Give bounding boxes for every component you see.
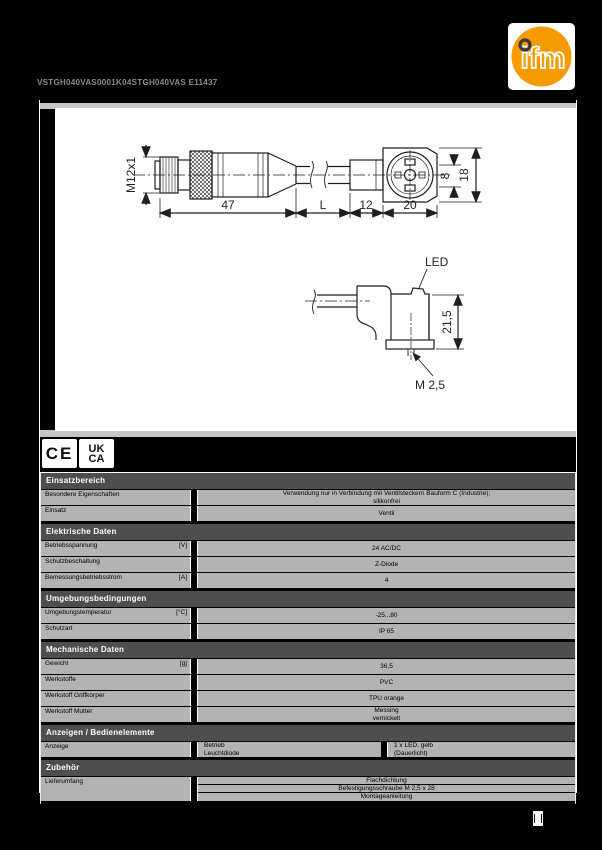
row-value: -25...80 <box>375 612 397 619</box>
table-row: Gewicht [g] 36,5 <box>41 659 575 674</box>
row-value: Verwendung nur in Verbindung mit Ventils… <box>283 490 490 497</box>
svg-text:ifm: ifm <box>521 42 566 75</box>
row-label: Schutzart <box>45 625 72 633</box>
row-label: Besondere Eigenschaften <box>45 491 119 499</box>
table-row: Anzeige Betrieb Leuchtdiode 1 x LED, gel… <box>41 742 575 757</box>
dim-47: 47 <box>221 198 235 212</box>
row-value: PVC <box>380 679 393 686</box>
panel-bottom-strip <box>40 430 576 437</box>
ifm-logo-icon: ifm <box>508 23 575 90</box>
row-unit: [A] <box>179 574 187 582</box>
section-header: Einsatzbereich <box>41 473 575 489</box>
dim-20: 20 <box>403 198 417 212</box>
section-header: Umgebungsbedingungen <box>41 591 575 607</box>
table-row: Werkstoff Mutter Messing vernickelt <box>41 707 575 722</box>
row-value: Ventil <box>379 510 395 517</box>
row-value: Z-Diode <box>375 561 398 568</box>
technical-drawing-panel: M12x1 <box>55 108 576 431</box>
ukca-mark: UK CA <box>79 439 114 468</box>
ce-mark: CE <box>42 439 77 468</box>
row-value: Montageanleitung <box>361 793 413 800</box>
ukca-line1: UK <box>89 444 105 454</box>
page-title: VSTGH040VAS0001K04STGH040VAS E11437 <box>37 78 218 87</box>
row-value: vernickelt <box>373 715 400 722</box>
table-row: Betriebsspannung [V] 24 AC/DC <box>41 541 575 556</box>
table-row: Schutzart IP 65 <box>41 624 575 639</box>
row-label: Bemessungsbetriebsstrom <box>45 574 122 582</box>
row-value: 24 AC/DC <box>372 545 401 552</box>
screw-label: M 2,5 <box>415 378 445 392</box>
table-row: Umgebungstemperatur [°C] -25...80 <box>41 608 575 623</box>
row-value: Befestigungsschraube M 2,5 x 28 <box>338 785 434 792</box>
table-row: Werkstoff Griffkörper TPU orange <box>41 691 575 706</box>
ifm-logo: ifm <box>508 23 575 90</box>
dim-L: L <box>320 198 327 212</box>
dim-21-5: 21,5 <box>440 310 454 334</box>
row-label: Betriebsspannung <box>45 542 97 550</box>
row-value: 1 x LED, gelb <box>394 742 433 749</box>
dim-12: 12 <box>359 198 373 212</box>
ce-mark-text: CE <box>46 444 74 464</box>
row-unit: [°C] <box>176 609 187 617</box>
row-label: Umgebungstemperatur <box>45 609 111 617</box>
row-label: Gewicht <box>45 660 68 668</box>
dim-18: 18 <box>457 168 471 182</box>
table-row: Schutzbeschaltung Z-Diode <box>41 557 575 572</box>
table-row: Werkstoffe PVC <box>41 675 575 690</box>
section-header: Zubehör <box>41 760 575 776</box>
row-label: Werkstoffe <box>45 676 76 684</box>
table-row: Besondere Eigenschaften Verwendung nur i… <box>41 490 575 505</box>
row-unit: [V] <box>179 542 187 550</box>
dim-8: 8 <box>438 172 452 179</box>
section-header: Elektrische Daten <box>41 524 575 540</box>
table-row: Lieferumfang Flachdichtung Befestigungss… <box>41 777 575 801</box>
page-mark-icon <box>533 811 543 826</box>
led-label: LED <box>425 255 449 269</box>
section-header: Anzeigen / Bedienelemente <box>41 725 575 741</box>
row-label: Werkstoff Griffkörper <box>45 692 105 700</box>
section-zubehoer: Zubehör Lieferumfang Flachdichtung Befes… <box>41 760 575 801</box>
ukca-line2: CA <box>89 454 105 464</box>
row-label: Werkstoff Mutter <box>45 708 92 716</box>
row-value: (Dauerlicht) <box>394 750 428 757</box>
dim-m12: M12x1 <box>124 157 138 193</box>
table-row: Einsatz Ventil <box>41 506 575 521</box>
technical-drawing: M12x1 <box>55 108 576 431</box>
row-value: Betrieb <box>204 742 225 749</box>
row-value: IP 65 <box>379 628 394 635</box>
row-unit: [g] <box>180 660 187 668</box>
section-elektrische-daten: Elektrische Daten Betriebsspannung [V] 2… <box>41 524 575 588</box>
section-umgebungsbedingungen: Umgebungsbedingungen Umgebungstemperatur… <box>41 591 575 639</box>
row-value: TPU orange <box>369 695 404 702</box>
row-value: 4 <box>385 577 389 584</box>
datasheet-page: VSTGH040VAS0001K04STGH040VAS E11437 ifm <box>0 0 602 850</box>
section-mechanische-daten: Mechanische Daten Gewicht [g] 36,5 Werks… <box>41 642 575 722</box>
row-label: Lieferumfang <box>45 778 83 786</box>
page-border-right <box>576 100 577 793</box>
row-value: 36,5 <box>380 663 393 670</box>
row-value: silikonfrei <box>373 498 400 505</box>
section-anzeigen: Anzeigen / Bedienelemente Anzeige Betrie… <box>41 725 575 757</box>
row-value: Flachdichtung <box>366 777 406 784</box>
spec-table: Einsatzbereich Besondere Eigenschaften V… <box>40 472 576 804</box>
table-row: Bemessungsbetriebsstrom [A] 4 <box>41 573 575 588</box>
row-value: Messing <box>374 707 398 714</box>
row-label: Anzeige <box>45 743 69 751</box>
section-header: Mechanische Daten <box>41 642 575 658</box>
row-value: Leuchtdiode <box>204 750 239 757</box>
section-einsatzbereich: Einsatzbereich Besondere Eigenschaften V… <box>41 473 575 521</box>
row-label: Einsatz <box>45 507 66 515</box>
row-label: Schutzbeschaltung <box>45 558 100 566</box>
